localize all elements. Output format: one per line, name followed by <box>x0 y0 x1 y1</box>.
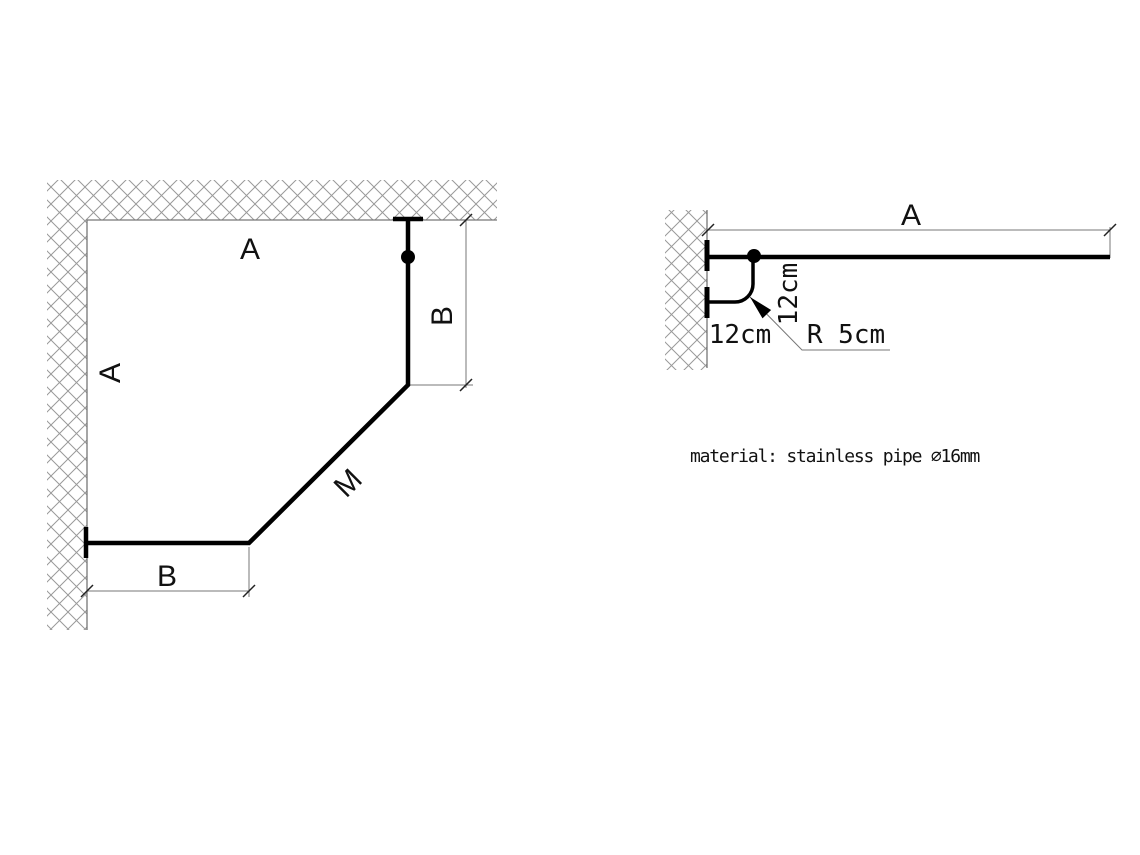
plan-top-wall-hatch <box>47 180 497 220</box>
plan-label-a-top: A <box>240 233 260 266</box>
plan-left-wall-hatch <box>47 220 87 630</box>
plan-label-b-right: B <box>426 306 459 326</box>
plan-label-a-left: A <box>94 363 127 383</box>
side-label-a: A <box>901 199 921 232</box>
plan-label-b-bottom: B <box>157 560 177 593</box>
side-label-12cm-horizontal: 12cm <box>709 320 772 350</box>
side-label-12cm-vertical: 12cm <box>774 263 804 326</box>
side-view: A 12cm 12cm R 5cm <box>665 199 1116 370</box>
side-bracket-curve <box>707 262 753 302</box>
technical-drawing: A A B B M A 12cm 12 <box>0 0 1140 855</box>
side-wall-hatch <box>665 210 707 370</box>
drawing-canvas: A A B B M A 12cm 12 <box>0 0 1140 855</box>
plan-support-ball <box>401 250 415 264</box>
plan-label-m-diagonal: M <box>328 463 369 504</box>
plan-view: A A B B M <box>47 180 497 630</box>
plan-wall-inner-edge <box>87 220 497 630</box>
side-label-radius: R 5cm <box>807 320 885 350</box>
side-support-ball <box>747 249 761 263</box>
material-note: material: stainless pipe ∅16mm <box>690 446 979 467</box>
